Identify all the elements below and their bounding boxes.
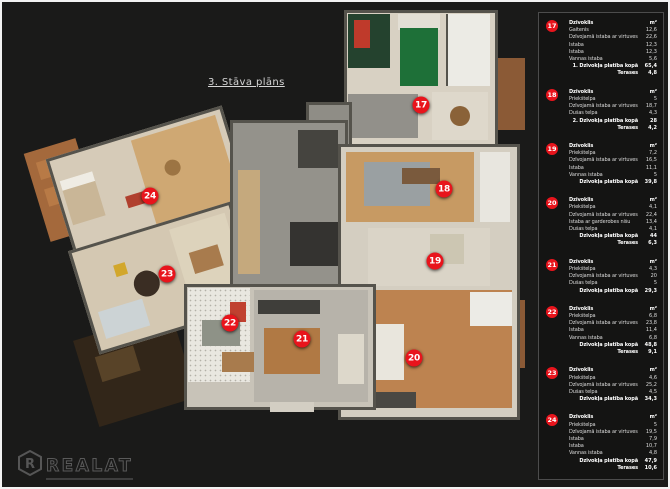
apartment-number-badge: 21 xyxy=(546,259,558,271)
apartment-header-row: Dzīvoklis m² xyxy=(569,259,657,266)
room-row: Priekštelpa4,3 xyxy=(569,266,657,273)
plan-furniture xyxy=(264,328,320,374)
apartment-summary: 22 Dzīvoklis m² Priekštelpa6,8Dzīvojamā … xyxy=(545,306,657,356)
apartment-header-row: Dzīvoklis m² xyxy=(569,20,657,27)
total-row: Dzīvokļa platība kopā29,3 xyxy=(569,288,657,295)
room-label: Dzīvojamā istaba ar virtuves zonu xyxy=(569,157,638,164)
floor-plan-page: 3. Stāva plāns xyxy=(0,0,670,489)
room-label: Dzīvojamā istaba ar virtuves zonu xyxy=(569,429,638,436)
apartment-number-badge: 20 xyxy=(546,197,558,209)
room-row: Dzīvojamā istaba ar virtuves nišu22,6 xyxy=(569,34,657,41)
plan-furniture xyxy=(354,20,370,48)
logo-text: REALAT xyxy=(46,458,133,480)
plan-balcony xyxy=(270,402,314,412)
room-label: Priekštelpa xyxy=(569,375,638,382)
area-value: 5 xyxy=(641,280,657,287)
room-row: Dzīvojamā istaba ar virtuves zonu23,8 xyxy=(569,320,657,327)
total-row: Dzīvokļa platība kopā48,8 xyxy=(569,342,657,349)
area-value: 20 xyxy=(641,273,657,280)
plan-furniture xyxy=(258,300,320,314)
apartment-marker-24: 24 xyxy=(142,188,159,205)
unit-label: m² xyxy=(641,259,657,266)
apartment-rows: Dzīvoklis m² Priekštelpa4,1Dzīvojamā ist… xyxy=(569,197,657,247)
area-value: 4,8 xyxy=(641,70,657,77)
apartment-rows: Dzīvoklis m² Priekštelpa5Dzīvojamā istab… xyxy=(569,89,657,132)
apartment-rows: Dzīvoklis m² Priekštelpa5Dzīvojamā istab… xyxy=(569,414,657,472)
room-row: Istaba10,7 xyxy=(569,443,657,450)
apartment-header-label: Dzīvoklis xyxy=(569,414,638,421)
room-row: Istaba7,9 xyxy=(569,436,657,443)
room-label: Istaba xyxy=(569,165,638,172)
area-value: 34,3 xyxy=(641,396,657,403)
total-row: Terases9,1 xyxy=(569,349,657,356)
room-row: Priekštelpa7,2 xyxy=(569,150,657,157)
room-row: Dušas telpa4,1 xyxy=(569,226,657,233)
room-label: Istaba xyxy=(569,42,638,49)
total-label: Terases xyxy=(617,349,638,356)
total-label: Dzīvokļa platība kopā xyxy=(579,396,638,403)
total-row: Terases6,3 xyxy=(569,240,657,247)
apartment-header-row: Dzīvoklis m² xyxy=(569,367,657,374)
room-label: Dušas telpa xyxy=(569,389,638,396)
area-value: 4,5 xyxy=(641,389,657,396)
area-value: 19,5 xyxy=(641,429,657,436)
apartment-header-label: Dzīvoklis xyxy=(569,197,638,204)
room-label: Vannas istaba xyxy=(569,172,638,179)
area-value: 12,3 xyxy=(641,49,657,56)
area-value: 25,2 xyxy=(641,382,657,389)
apartment-summary: 18 Dzīvoklis m² Priekštelpa5Dzīvojamā is… xyxy=(545,89,657,132)
room-label: Dušas telpa xyxy=(569,226,638,233)
unit-label: m² xyxy=(641,20,657,27)
unit-label: m² xyxy=(641,414,657,421)
room-label: Dušas telpa xyxy=(569,280,638,287)
room-row: Priekštelpa5 xyxy=(569,422,657,429)
area-value: 5 xyxy=(641,422,657,429)
plan-furniture xyxy=(400,28,438,86)
total-label: Dzīvokļa platība kopā xyxy=(579,342,638,349)
room-row: Istaba11,4 xyxy=(569,327,657,334)
room-label: Dušas telpa xyxy=(569,110,638,117)
room-row: Priekštelpa5 xyxy=(569,96,657,103)
area-value: 16,5 xyxy=(641,157,657,164)
total-row: Terases10,6 xyxy=(569,465,657,472)
plan-furniture xyxy=(222,352,258,372)
room-label: Priekštelpa xyxy=(569,204,638,211)
apartment-number-badge: 19 xyxy=(546,143,558,155)
room-row: Vannas istaba5,6 xyxy=(569,56,657,63)
unit-label: m² xyxy=(641,306,657,313)
realat-logo: R REALAT xyxy=(18,450,133,480)
area-value: 44 xyxy=(641,233,657,240)
apartment-rows: Dzīvoklis m² Priekštelpa4,3Dzīvojamā ist… xyxy=(569,259,657,295)
plan-corridor xyxy=(238,170,260,274)
area-value: 6,8 xyxy=(641,335,657,342)
apartment-header-row: Dzīvoklis m² xyxy=(569,89,657,96)
apartment-summary: 20 Dzīvoklis m² Priekštelpa4,1Dzīvojamā … xyxy=(545,197,657,247)
plan-stairs xyxy=(290,222,340,266)
apartment-header-label: Dzīvoklis xyxy=(569,259,638,266)
area-value: 18,7 xyxy=(641,103,657,110)
room-label: Vannas istaba xyxy=(569,335,638,342)
total-label: Dzīvokļa platība kopā xyxy=(579,288,638,295)
room-label: Dzīvojamā istaba ar virtuves zonu xyxy=(569,273,638,280)
area-value: 6,3 xyxy=(641,240,657,247)
area-value: 23,8 xyxy=(641,320,657,327)
room-row: Dzīvojamā istaba ar virtuves nišu22,4 xyxy=(569,212,657,219)
room-row: Gaitenis12,6 xyxy=(569,27,657,34)
apartment-marker-17: 17 xyxy=(413,97,430,114)
total-label: Dzīvokļa platība kopā xyxy=(579,179,638,186)
plan-furniture xyxy=(402,168,440,184)
apartment-header-label: Dzīvoklis xyxy=(569,306,638,313)
apartment-summary: 23 Dzīvoklis m² Priekštelpa4,6Dzīvojamā … xyxy=(545,367,657,403)
apartment-header-label: Dzīvoklis xyxy=(569,89,638,96)
room-row: Dušas telpa4,5 xyxy=(569,389,657,396)
room-row: Priekštelpa4,6 xyxy=(569,375,657,382)
area-value: 65,4 xyxy=(641,63,657,70)
area-value: 4,3 xyxy=(641,266,657,273)
area-value: 11,1 xyxy=(641,165,657,172)
room-label: Priekštelpa xyxy=(569,150,638,157)
plan-room-floor xyxy=(470,292,512,326)
room-label: Istaba ar garderobes nišu xyxy=(569,219,638,226)
room-row: Istaba12,3 xyxy=(569,49,657,56)
total-label: Dzīvokļa platība kopā xyxy=(579,233,638,240)
area-value: 5 xyxy=(641,172,657,179)
room-label: Dzīvojamā istaba ar virtuves nišu xyxy=(569,212,638,219)
total-row: Dzīvokļa platība kopā44 xyxy=(569,233,657,240)
plan-furniture xyxy=(338,334,364,384)
apartment-marker-19: 19 xyxy=(427,253,444,270)
area-value: 9,1 xyxy=(641,349,657,356)
total-label: Terases xyxy=(617,465,638,472)
area-value: 5 xyxy=(641,96,657,103)
room-label: Priekštelpa xyxy=(569,313,638,320)
area-value: 4,1 xyxy=(641,204,657,211)
apartment-header-label: Dzīvoklis xyxy=(569,143,638,150)
area-value: 7,2 xyxy=(641,150,657,157)
room-label: Dzīvojamā istaba ar virtuves nišu xyxy=(569,34,638,41)
room-row: Priekštelpa4,1 xyxy=(569,204,657,211)
apartment-list: 17 Dzīvoklis m² Gaitenis12,6Dzīvojamā is… xyxy=(538,12,664,480)
total-label: 1. Dzīvokļa platība kopā xyxy=(573,63,638,70)
room-row: Vannas istaba6,8 xyxy=(569,335,657,342)
apartment-header-row: Dzīvoklis m² xyxy=(569,143,657,150)
room-row: Istaba12,3 xyxy=(569,42,657,49)
area-value: 4,2 xyxy=(641,125,657,132)
plan-furniture xyxy=(113,262,128,277)
room-label: Istaba xyxy=(569,443,638,450)
room-row: Dušas telpa5 xyxy=(569,280,657,287)
room-row: Vannas istaba5 xyxy=(569,172,657,179)
apartment-rows: Dzīvoklis m² Priekštelpa4,6Dzīvojamā ist… xyxy=(569,367,657,403)
apartment-rows: Dzīvoklis m² Gaitenis12,6Dzīvojamā istab… xyxy=(569,20,657,78)
total-row: Dzīvokļa platība kopā39,8 xyxy=(569,179,657,186)
area-value: 22,6 xyxy=(641,34,657,41)
total-row: Terases4,8 xyxy=(569,70,657,77)
area-value: 4,6 xyxy=(641,375,657,382)
apartment-header-row: Dzīvoklis m² xyxy=(569,197,657,204)
room-label: Dzīvojamā istaba ar virtuves zonu xyxy=(569,103,638,110)
logo-hexagon-icon: R xyxy=(18,450,42,480)
area-value: 4,1 xyxy=(641,226,657,233)
room-label: Gaitenis xyxy=(569,27,638,34)
plan-room-floor xyxy=(348,94,418,138)
apartment-number-badge: 24 xyxy=(546,414,558,426)
area-value: 12,6 xyxy=(641,27,657,34)
logo-symbol: R xyxy=(25,457,35,472)
apartment-marker-20: 20 xyxy=(406,350,423,367)
area-value: 4,8 xyxy=(641,450,657,457)
room-label: Dzīvojamā istaba ar virtuves zonu xyxy=(569,320,638,327)
room-row: Dzīvojamā istaba ar virtuves zonu16,5 xyxy=(569,157,657,164)
apartment-header-label: Dzīvoklis xyxy=(569,367,638,374)
total-label: Terases xyxy=(617,70,638,77)
total-label: Terases xyxy=(617,125,638,132)
plan-furniture xyxy=(98,299,150,339)
apartment-number-badge: 17 xyxy=(546,20,558,32)
room-row: Dzīvojamā istaba ar virtuves zonu18,7 xyxy=(569,103,657,110)
room-label: Priekštelpa xyxy=(569,266,638,273)
apartment-rows: Dzīvoklis m² Priekštelpa7,2Dzīvojamā ist… xyxy=(569,143,657,186)
apartment-rows: Dzīvoklis m² Priekštelpa6,8Dzīvojamā ist… xyxy=(569,306,657,356)
apartment-number-badge: 23 xyxy=(546,367,558,379)
area-value: 6,8 xyxy=(641,313,657,320)
plan-furniture xyxy=(450,106,470,126)
apartment-header-row: Dzīvoklis m² xyxy=(569,306,657,313)
area-value: 13,4 xyxy=(641,219,657,226)
room-label: Dzīvojamā istaba ar virtuves zonu xyxy=(569,382,638,389)
total-label: Dzīvokļa platība kopā xyxy=(579,458,638,465)
total-row: 2. Dzīvokļa platība kopā28 xyxy=(569,118,657,125)
area-value: 28 xyxy=(641,118,657,125)
area-value: 4,3 xyxy=(641,110,657,117)
apartment-number-badge: 22 xyxy=(546,306,558,318)
area-value: 47,9 xyxy=(641,458,657,465)
room-row: Vannas istaba4,8 xyxy=(569,450,657,457)
total-label: Terases xyxy=(617,240,638,247)
apartment-header-label: Dzīvoklis xyxy=(569,20,638,27)
apartment-summary: 21 Dzīvoklis m² Priekštelpa4,3Dzīvojamā … xyxy=(545,259,657,295)
area-value: 11,4 xyxy=(641,327,657,334)
room-row: Dušas telpa4,3 xyxy=(569,110,657,117)
apartment-summary: 19 Dzīvoklis m² Priekštelpa7,2Dzīvojamā … xyxy=(545,143,657,186)
room-label: Istaba xyxy=(569,49,638,56)
apartment-header-row: Dzīvoklis m² xyxy=(569,414,657,421)
total-row: 1. Dzīvokļa platība kopā65,4 xyxy=(569,63,657,70)
room-row: Priekštelpa6,8 xyxy=(569,313,657,320)
total-row: Dzīvokļa platība kopā47,9 xyxy=(569,458,657,465)
area-value: 12,3 xyxy=(641,42,657,49)
plan-elevator xyxy=(298,130,338,168)
apartment-marker-21: 21 xyxy=(294,331,311,348)
room-row: Istaba ar garderobes nišu13,4 xyxy=(569,219,657,226)
total-label: 2. Dzīvokļa platība kopā xyxy=(573,118,638,125)
unit-label: m² xyxy=(641,367,657,374)
plan-room-floor xyxy=(480,152,510,222)
area-value: 10,6 xyxy=(641,465,657,472)
unit-label: m² xyxy=(641,197,657,204)
room-label: Priekštelpa xyxy=(569,422,638,429)
room-label: Istaba xyxy=(569,436,638,443)
room-label: Istaba xyxy=(569,327,638,334)
total-row: Terases4,2 xyxy=(569,125,657,132)
apartment-marker-18: 18 xyxy=(436,181,453,198)
apartment-marker-22: 22 xyxy=(222,315,239,332)
page-title: 3. Stāva plāns xyxy=(208,77,285,88)
area-value: 7,9 xyxy=(641,436,657,443)
apartment-marker-23: 23 xyxy=(159,266,176,283)
area-value: 5,6 xyxy=(641,56,657,63)
area-value: 10,7 xyxy=(641,443,657,450)
apartment-summary: 17 Dzīvoklis m² Gaitenis12,6Dzīvojamā is… xyxy=(545,20,657,78)
area-value: 22,4 xyxy=(641,212,657,219)
room-row: Dzīvojamā istaba ar virtuves zonu25,2 xyxy=(569,382,657,389)
room-label: Vannas istaba xyxy=(569,450,638,457)
room-label: Vannas istaba xyxy=(569,56,638,63)
room-row: Dzīvojamā istaba ar virtuves zonu20 xyxy=(569,273,657,280)
plan-room-floor xyxy=(446,14,490,86)
room-row: Dzīvojamā istaba ar virtuves zonu19,5 xyxy=(569,429,657,436)
total-row: Dzīvokļa platība kopā34,3 xyxy=(569,396,657,403)
unit-label: m² xyxy=(641,89,657,96)
room-label: Priekštelpa xyxy=(569,96,638,103)
area-value: 39,8 xyxy=(641,179,657,186)
apartment-number-badge: 18 xyxy=(546,89,558,101)
area-value: 48,8 xyxy=(641,342,657,349)
apartment-summary: 24 Dzīvoklis m² Priekštelpa5Dzīvojamā is… xyxy=(545,414,657,472)
room-row: Istaba11,1 xyxy=(569,165,657,172)
area-value: 29,3 xyxy=(641,288,657,295)
unit-label: m² xyxy=(641,143,657,150)
